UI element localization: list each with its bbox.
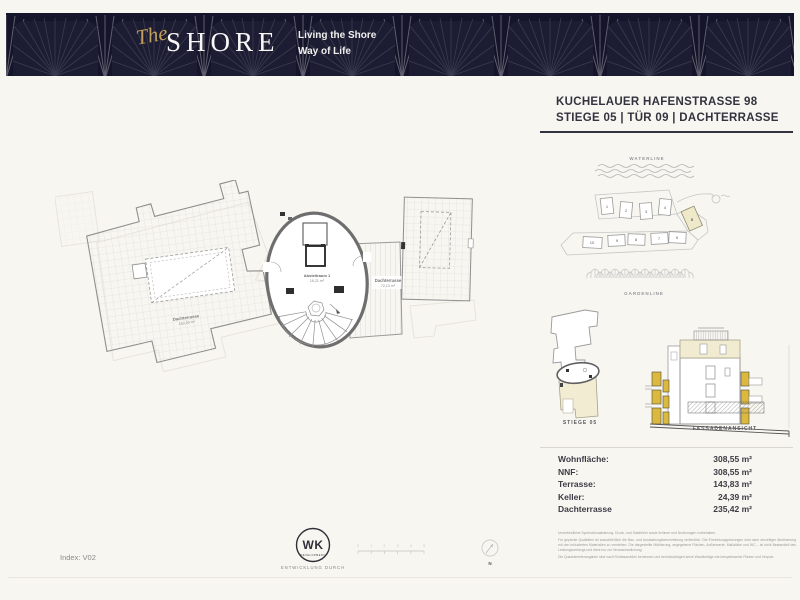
developed-by-label: ENTWICKLUNG DURCH <box>258 565 368 570</box>
water-waves-icon <box>595 165 694 178</box>
tagline-line2: Way of Life <box>298 44 376 60</box>
facade-caption: FASSADENANSICHT <box>660 426 790 432</box>
terrace-left: Dachterrasse 163,29 m² <box>82 180 276 370</box>
page-bottom-rule <box>8 577 792 578</box>
waterline-label: WATERLINE <box>629 156 664 161</box>
elevator-shaft <box>306 246 325 266</box>
address-line1: KUCHELAUER HAFENSTRASSE 98 <box>556 94 779 110</box>
svg-text:0: 0 <box>357 544 359 548</box>
artdeco-pattern-icon <box>6 13 794 76</box>
table-row: Wohnfläche: 308,55 m² <box>558 454 752 464</box>
scale-bar: 0 1 2 3 4 5 <box>354 538 430 558</box>
terrace-band-hatch <box>688 402 764 413</box>
disclaimer-p3: Die Quadratmeterangaben sind nach Rohbau… <box>558 555 796 560</box>
area-label: Keller: <box>558 492 682 502</box>
address-heading: KUCHELAUER HAFENSTRASSE 98 STIEGE 05 | T… <box>556 94 779 126</box>
stiege-caption: STIEGE 05 <box>540 420 620 426</box>
facade-elevation <box>645 315 795 440</box>
door-opening-right <box>363 252 371 262</box>
terrace-mid-label: Dachterrasse <box>375 278 402 283</box>
disclaimer-p2: Für geplante Qualitäten ist ausschließli… <box>558 538 796 553</box>
table-divider <box>540 447 793 448</box>
site-plan: WATERLINE 1 2 <box>555 145 795 310</box>
area-label: Wohnfläche: <box>558 454 682 464</box>
tagline-line1: Living the Shore <box>298 28 376 44</box>
scale-tick-labels: 0 1 2 3 4 5 <box>357 544 425 548</box>
svg-text:1: 1 <box>370 544 372 548</box>
table-row: NNF: 308,55 m² <box>558 467 752 477</box>
table-row: Terrasse: 143,83 m² <box>558 479 752 489</box>
roof-railing-icon <box>694 331 728 340</box>
legal-disclaimer: Unverbindliche Symbolvisualisierung. Dru… <box>558 531 796 563</box>
key-plan-stiege <box>548 300 660 432</box>
terrace-mid-area: 72,13 m² <box>381 284 396 288</box>
terrace-right <box>400 197 475 301</box>
wk-logo-text: WK <box>303 538 324 552</box>
header-banner: The SHORE Living the Shore Way of Life <box>6 13 794 76</box>
area-table: Wohnfläche: 308,55 m² NNF: 308,55 m² Ter… <box>558 454 752 517</box>
north-compass-icon: N <box>478 536 502 568</box>
door-opening-left <box>263 262 271 272</box>
area-value: 24,39 m² <box>682 492 752 502</box>
index-version: Index: V02 <box>60 553 96 562</box>
door-mark-right <box>334 286 344 293</box>
svg-text:3: 3 <box>397 544 399 548</box>
core-room-label: Abstellraum 1 <box>304 273 331 278</box>
facade-penthouse <box>680 340 740 358</box>
the-shore-logo: The SHORE <box>140 27 300 67</box>
tagline: Living the Shore Way of Life <box>298 28 376 60</box>
wk-logo-subtext: DEVELOPMENT <box>301 554 326 557</box>
svg-text:2: 2 <box>383 544 385 548</box>
area-value: 308,55 m² <box>682 467 752 477</box>
address-divider <box>540 131 793 133</box>
svg-text:5: 5 <box>423 544 425 548</box>
door-mark-left <box>286 288 294 294</box>
shaft-upper <box>303 223 327 245</box>
core-room-area: 16,21 m² <box>310 279 325 283</box>
address-line2: STIEGE 05 | TÜR 09 | DACHTERRASSE <box>556 110 779 126</box>
area-value: 235,42 m² <box>682 504 752 514</box>
table-row: Dachterrasse 235,42 m² <box>558 504 752 514</box>
roof-floor-plan: Dachterrasse 72,13 m² Dachterrasse 163,2… <box>55 180 500 445</box>
gardenline-label: GARDENLINE <box>624 291 664 296</box>
svg-text:4: 4 <box>410 544 412 548</box>
building-10-number: 10 <box>590 240 595 245</box>
table-row: Keller: 24,39 m² <box>558 492 752 502</box>
area-value: 308,55 m² <box>682 454 752 464</box>
compass-n-label: N <box>488 561 491 566</box>
area-label: NNF: <box>558 467 682 477</box>
disclaimer-p1: Unverbindliche Symbolvisualisierung. Dru… <box>558 531 796 536</box>
floorplan-sheet: The SHORE Living the Shore Way of Life K… <box>0 0 800 600</box>
site-buildings <box>583 197 703 248</box>
area-value: 143,83 m² <box>682 479 752 489</box>
area-label: Terrasse: <box>558 479 682 489</box>
area-label: Dachterrasse <box>558 504 682 514</box>
